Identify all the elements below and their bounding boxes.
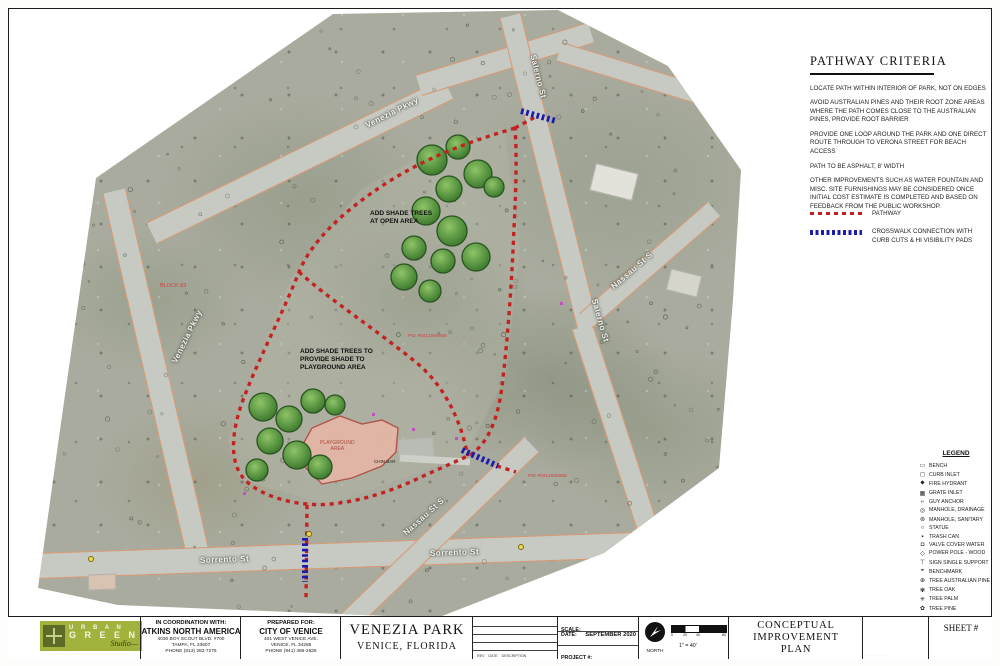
utility-mark (243, 492, 246, 495)
legend-item: ✳ TREE PALM (916, 596, 996, 603)
legend-item-label: FIRE HYDRANT (929, 481, 967, 487)
legend-symbol-icon: ◇ (916, 550, 929, 557)
legend-items: ▭ BENCH ◻ CURB INLET ⬥ FIRE HYDRANT ▦ GR… (916, 462, 996, 612)
date-value: SEPTEMBER 2020 (585, 632, 636, 645)
parcel-id-label: PID #0412060056 (408, 334, 447, 339)
date-label: DATE: (561, 632, 577, 645)
criteria-paragraph: PROVIDE ONE LOOP AROUND THE PARK AND ONE… (810, 131, 988, 156)
shuffleboard-court (397, 437, 434, 459)
crosswalk-line-swatch (810, 230, 862, 235)
legend-item-label: BENCH (929, 463, 947, 469)
revision-table: REV DATE DESCRIPTION (472, 617, 558, 659)
legend-item-label: TRASH CAN (929, 534, 959, 540)
criteria-paragraphs: LOCATE PATH WITHIN INTERIOR OF PARK, NOT… (810, 85, 996, 211)
legend-symbol-icon: ◻ (916, 471, 929, 478)
north-and-scale-cell: NORTH 0 20 40 80 1" = 40' (638, 617, 729, 659)
utility-mark (560, 302, 563, 305)
plan-sheet: Venezia Pkwy Salerno St Nassau St S Sale… (0, 0, 1000, 666)
legend-title: LEGEND (916, 450, 996, 457)
sheet-number-cell: SHEET # (928, 617, 993, 659)
legend-symbol-icon: ✾ (916, 587, 929, 594)
urban-green-studio-logo: U R B A N G R E E N Studio— (40, 621, 142, 651)
logo-fineprint: · · · · · · · · · · · · · · · · · · · · … (40, 650, 140, 654)
legend-item-label: GRATE INLET (929, 490, 963, 496)
criteria-paragraph: LOCATE PATH WITHIN INTERIOR OF PARK, NOT… (810, 85, 988, 93)
street-label: Sorrento St (200, 554, 249, 565)
legend-symbol-icon: ▭ (916, 462, 929, 469)
legend-symbol-icon: ◎ (916, 507, 929, 514)
pathway-line-swatch (810, 212, 862, 215)
street-light-dot (306, 531, 312, 537)
legend-item: ◎ MANHOLE, DRAINAGE (916, 507, 996, 514)
legend-item-label: GUY ANCHOR (929, 499, 964, 505)
legend-item: ▦ GRATE INLET (916, 490, 996, 497)
scale-date-project-cell: SCALE: DATE: SEPTEMBER 2020 PROJECT #: (557, 617, 639, 659)
north-arrow-icon (644, 621, 666, 643)
file-info-cell: · · · · · · · · · · · · · (862, 617, 929, 659)
legend-item: ○ STATUE (916, 525, 996, 531)
legend-item-label: TREE PALM (929, 596, 958, 602)
legend-symbol-icon: ▦ (916, 490, 929, 497)
legend-item: ✿ TREE PINE (916, 605, 996, 612)
utility-mark (455, 437, 458, 440)
legend-symbol-icon: ✳ (916, 596, 929, 603)
legend-symbol-icon: ▪ (916, 534, 929, 540)
legend-item: ◇ POWER POLE - WOOD (916, 550, 996, 557)
symbol-legend: LEGEND ▭ BENCH ◻ CURB INLET ⬥ FIRE HYDRA… (916, 450, 996, 614)
pathway-legend-row: PATHWAY (810, 210, 990, 219)
crosswalk-legend-row: CROSSWALK CONNECTION WITH CURB CUTS & HI… (810, 228, 990, 245)
legend-item: ⬥ FIRE HYDRANT (916, 480, 996, 487)
legend-item: ⌖ BENCHMARK (916, 568, 996, 575)
parcel-id-label: PID #0412060058 (528, 474, 567, 479)
street-light-dot (88, 556, 94, 562)
legend-symbol-icon: ⊤ (916, 559, 929, 566)
block-label: BLOCK 83 (160, 283, 186, 289)
file-microtext: · · · · · · · · · · · · · (866, 653, 889, 657)
legend-item-label: CURB INLET (929, 472, 960, 478)
prepared-for-cell: PREPARED FOR: CITY OF VENICE 401 WEST VE… (240, 617, 341, 659)
criteria-paragraph: PATH TO BE ASPHALT, 8' WIDTH (810, 163, 988, 171)
legend-item-label: VALVE COVER WATER (929, 542, 984, 548)
note-shade-trees-playground: ADD SHADE TREES TO PROVIDE SHADE TO PLAY… (300, 348, 388, 372)
title-underline (810, 73, 934, 75)
legend-item: ⊚ MANHOLE, SANITARY (916, 516, 996, 523)
chin-bar-label: CHIN BAR (374, 459, 396, 464)
pathway-criteria-block: PATHWAY CRITERIA LOCATE PATH WITHIN INTE… (810, 54, 996, 217)
title-block: U R B A N G R E E N Studio— · · · · · · … (8, 616, 992, 659)
legend-symbol-icon: ○ (916, 525, 929, 531)
revision-headers: REV DATE DESCRIPTION (473, 654, 558, 658)
legend-item-label: STATUE (929, 525, 949, 531)
legend-item-label: MANHOLE, DRAINAGE (929, 507, 985, 513)
graphic-scale-bar (671, 625, 727, 633)
note-shade-trees-open-area: ADD SHADE TREES AT OPEN AREA (370, 210, 450, 226)
legend-item: ✾ TREE OAK (916, 587, 996, 594)
legend-item: ▭ BENCH (916, 462, 996, 469)
legend-symbol-icon: ◘ (916, 542, 929, 548)
logo-cell: U R B A N G R E E N Studio— · · · · · · … (8, 617, 140, 659)
criteria-title: PATHWAY CRITERIA (810, 54, 996, 69)
legend-symbol-icon: ⊕ (916, 577, 929, 584)
sheet-number-label: SHEET # (929, 623, 993, 633)
crosswalk-legend-label: CROSSWALK CONNECTION WITH CURB CUTS & HI… (872, 228, 990, 245)
legend-symbol-icon: ⌖ (916, 568, 929, 575)
legend-item: ◘ VALVE COVER WATER (916, 542, 996, 548)
utility-mark (412, 428, 415, 431)
legend-item-label: TREE OAK (929, 587, 955, 593)
street-label: Sorrento St (430, 547, 479, 558)
scale-ratio: 1" = 40' (679, 643, 697, 649)
coordination-cell: IN COORDINATION WITH: ATKINS NORTH AMERI… (140, 617, 241, 659)
project-name: VENEZIA PARK (341, 622, 473, 639)
legend-symbol-icon: ⬥ (916, 480, 929, 487)
logo-tree-icon (43, 625, 65, 647)
legend-item: ▪ TRASH CAN (916, 534, 996, 540)
legend-item-label: TREE AUSTRALIAN PINE (929, 578, 990, 584)
legend-item-label: SIGN SINGLE SUPPORT (929, 560, 989, 566)
project-number-label: PROJECT #: (561, 655, 592, 661)
legend-symbol-icon: ⊚ (916, 516, 929, 523)
legend-symbol-icon: ✿ (916, 605, 929, 612)
legend-item-label: POWER POLE - WOOD (929, 550, 985, 556)
north-arrow: NORTH (642, 621, 668, 654)
playground-label: PLAYGROUND AREA (320, 440, 355, 452)
legend-item: ◻ CURB INLET (916, 471, 996, 478)
plan-title-cell: CONCEPTUAL IMPROVEMENT PLAN (728, 617, 863, 659)
legend-item-label: MANHOLE, SANITARY (929, 517, 983, 523)
legend-item-label: BENCHMARK (929, 569, 962, 575)
legend-item-label: TREE PINE (929, 606, 956, 612)
criteria-paragraph: OTHER IMPROVEMENTS SUCH AS WATER FOUNTAI… (810, 177, 988, 210)
legend-item: ⊕ TREE AUSTRALIAN PINE (916, 577, 996, 584)
logo-text: U R B A N G R E E N Studio— (69, 625, 138, 648)
pathway-legend-label: PATHWAY (872, 210, 990, 219)
legend-symbol-icon: ⌐ (916, 499, 929, 505)
building (88, 574, 117, 591)
legend-item: ⌐ GUY ANCHOR (916, 499, 996, 505)
street-light-dot (518, 544, 524, 550)
criteria-paragraph: AVOID AUSTRALIAN PINES AND THEIR ROOT ZO… (810, 99, 988, 124)
project-name-cell: VENEZIA PARK VENICE, FLORIDA (340, 617, 473, 659)
legend-item: ⊤ SIGN SINGLE SUPPORT (916, 559, 996, 566)
project-location: VENICE, FLORIDA (341, 641, 473, 652)
utility-mark (372, 413, 375, 416)
